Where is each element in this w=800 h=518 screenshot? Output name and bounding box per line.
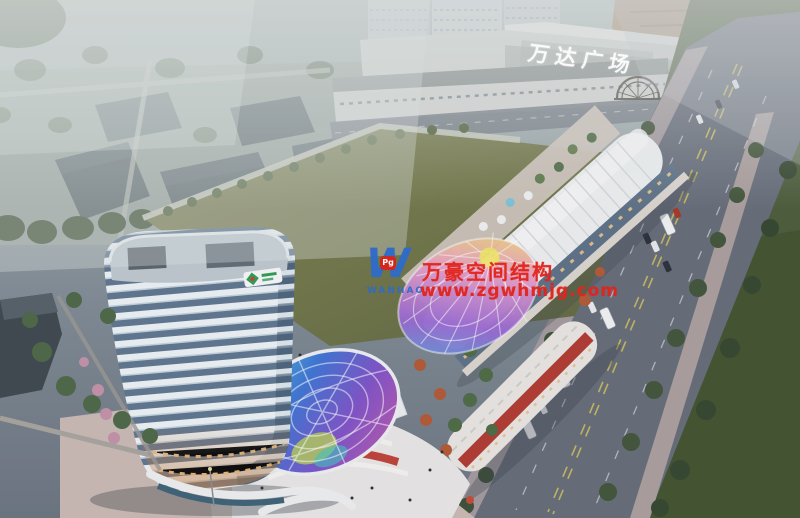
scene-artwork	[0, 0, 800, 518]
haze-overlay	[0, 0, 800, 518]
rendering-image: 万达广场 W Pg WANHAO 万豪空间结构 www.zgwhmjg.com	[0, 0, 800, 518]
